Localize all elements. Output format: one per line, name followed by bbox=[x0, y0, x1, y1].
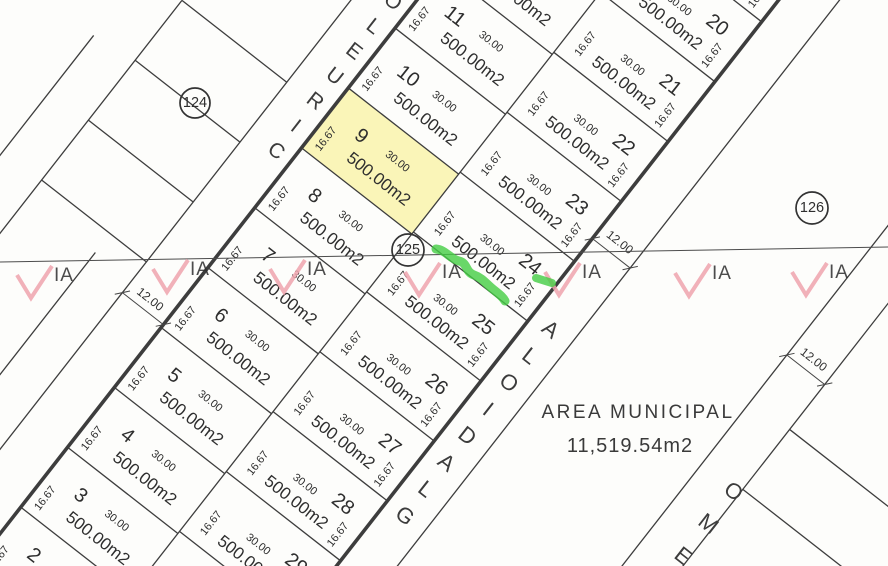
area-municipal-value: 11,519.54m2 bbox=[567, 435, 693, 457]
lot-25-number: 25 bbox=[468, 309, 499, 340]
via-watermark-text: IA bbox=[829, 262, 849, 283]
via-watermark-6: IA bbox=[792, 262, 849, 295]
lot-4-area-label: 500.00m2 bbox=[109, 448, 180, 510]
lot-3-number: 3 bbox=[69, 483, 91, 507]
lot-20-street-frontage-label: 16.67 bbox=[699, 41, 725, 70]
lot-2-frontage-label: 16.67 bbox=[0, 544, 12, 566]
via-watermark-1: IA bbox=[153, 259, 210, 292]
street-ciruelo-letter-I: I bbox=[286, 115, 305, 137]
lot-27-frontage-label: 16.67 bbox=[292, 389, 318, 418]
lot-26-number: 26 bbox=[421, 369, 452, 400]
lot-28-frontage-label: 16.67 bbox=[245, 449, 271, 478]
street-gladiola-letter-L: L bbox=[517, 342, 542, 369]
area-municipal-title: AREA MUNICIPAL bbox=[541, 402, 734, 423]
block124-row-line bbox=[182, 0, 287, 82]
lot-29-number: 29 bbox=[281, 549, 312, 566]
lot-20-number: 20 bbox=[702, 10, 733, 41]
via-watermark-check bbox=[675, 264, 710, 296]
lot-26-frontage-label: 16.67 bbox=[338, 329, 364, 358]
lot-7-number: 7 bbox=[257, 244, 279, 268]
lot-5-area-label: 500.00m2 bbox=[156, 388, 227, 450]
street-ciruelo-letter-C: C bbox=[263, 137, 289, 164]
lot-22-number: 22 bbox=[608, 129, 639, 160]
street-emo-letter-O: O bbox=[719, 476, 748, 506]
via-watermark-check bbox=[153, 260, 188, 292]
street-gladiola-letter-A: A bbox=[433, 448, 460, 477]
block124-west-edge bbox=[0, 0, 182, 246]
street-emo-letter-M: M bbox=[694, 508, 724, 539]
lot-28-number: 28 bbox=[327, 489, 358, 520]
lot-5-number: 5 bbox=[163, 364, 185, 388]
lot-8-depth-label: 30.00 bbox=[336, 208, 365, 234]
street-gladiola-letter-L: L bbox=[413, 475, 438, 502]
block-circle-124-label: 124 bbox=[183, 95, 207, 111]
lot-3-depth-label: 30.00 bbox=[102, 508, 131, 534]
lot-11-area-label: 500.00m2 bbox=[437, 28, 508, 90]
lot-24-frontage-label: 16.67 bbox=[432, 209, 458, 238]
street-ciruelo-letter-R: R bbox=[302, 87, 328, 114]
street-gladiola-letter-A: A bbox=[537, 315, 564, 344]
plat-map-scan: 12.00 12.00 12.00 16.671230.00500.00m216… bbox=[0, 0, 888, 566]
rotated-plat-group: 12.00 12.00 12.00 16.671230.00500.00m216… bbox=[0, 0, 888, 566]
west-street-edge bbox=[0, 35, 94, 185]
gladiola-width-label: 12.00 bbox=[604, 227, 637, 257]
via-watermark-text: IA bbox=[582, 262, 602, 283]
block124-row-line bbox=[42, 180, 147, 262]
lot-11-number: 11 bbox=[440, 1, 470, 31]
lot-24-street-frontage-label: 16.67 bbox=[512, 281, 538, 310]
via-watermark-check bbox=[792, 263, 827, 295]
lot-22-street-frontage-label: 16.67 bbox=[606, 161, 632, 190]
lot-21-street-frontage-label: 16.67 bbox=[652, 101, 678, 130]
lot-4-number: 4 bbox=[116, 424, 138, 448]
via-watermark-check bbox=[17, 266, 52, 298]
east-block-row-line bbox=[790, 429, 888, 541]
lot-22-frontage-label: 16.67 bbox=[526, 89, 552, 118]
street-gladiola-letter-O: O bbox=[495, 367, 524, 397]
street-ciruelo-letter-E: E bbox=[341, 38, 366, 65]
street-gladiola-letter-D: D bbox=[454, 421, 482, 450]
lot-8-number: 8 bbox=[303, 184, 325, 208]
street-ciruelo-letter-O: O bbox=[379, 0, 406, 16]
lot-23-number: 23 bbox=[561, 189, 592, 220]
lot-27-street-frontage-label: 16.67 bbox=[372, 460, 398, 489]
via-watermark-text: IA bbox=[712, 263, 732, 284]
via-watermark-text: IA bbox=[307, 259, 327, 280]
via-watermark-text: IA bbox=[190, 259, 210, 280]
lot-23-street-frontage-label: 16.67 bbox=[559, 221, 585, 250]
lot-3-area-label: 500.00m2 bbox=[62, 508, 133, 566]
green-dash-lot-24 bbox=[536, 278, 552, 283]
lot-4-depth-label: 30.00 bbox=[149, 448, 178, 474]
lot-25-street-frontage-label: 16.67 bbox=[465, 341, 491, 370]
lot-28-street-frontage-label: 16.67 bbox=[325, 520, 351, 549]
lot-6-number: 6 bbox=[210, 304, 232, 328]
block-circle-124: 124 bbox=[180, 88, 210, 118]
block-circle-126-label: 126 bbox=[800, 200, 824, 216]
lot-23-frontage-label: 16.67 bbox=[479, 149, 505, 178]
lot-6-depth-label: 30.00 bbox=[242, 328, 271, 354]
lot-26-street-frontage-label: 16.67 bbox=[418, 400, 444, 429]
lot-10-number: 10 bbox=[393, 61, 424, 92]
street-gladiola-letter-G: G bbox=[391, 500, 420, 530]
street-emo-letter-E: E bbox=[670, 541, 697, 566]
lot-2-number: 2 bbox=[23, 543, 45, 566]
east-block-row-line bbox=[743, 489, 886, 566]
street-ciruelo-letter-L: L bbox=[362, 14, 385, 39]
emo-width-label: 12.00 bbox=[798, 345, 831, 375]
lot-21-frontage-label: 16.67 bbox=[572, 30, 598, 59]
highlight-lot-9 bbox=[302, 88, 459, 234]
lot-6-area-label: 500.00m2 bbox=[203, 328, 274, 390]
lot-11-depth-label: 30.00 bbox=[476, 29, 505, 55]
via-watermark-3: IA bbox=[405, 262, 462, 295]
block-circle-126: 126 bbox=[796, 192, 828, 224]
via-watermark-check bbox=[405, 263, 440, 295]
lot-29-frontage-label: 16.67 bbox=[198, 509, 224, 538]
block-circle-125-label: 125 bbox=[396, 242, 420, 258]
lot-27-number: 27 bbox=[374, 429, 405, 460]
ciruelo-width-label: 12.00 bbox=[134, 284, 167, 314]
lot-12-area-label: 500.00m2 bbox=[483, 0, 554, 30]
street-ciruelo-letter-U: U bbox=[322, 63, 348, 90]
lot-19-street-frontage-label: 16.67 bbox=[746, 0, 772, 10]
via-watermark-5: IA bbox=[675, 263, 732, 296]
plat-svg: 12.00 12.00 12.00 16.671230.00500.00m216… bbox=[0, 0, 888, 566]
lot-labels: 16.671230.00500.00m216.671130.00500.00m2… bbox=[0, 0, 787, 566]
lot-21-number: 21 bbox=[655, 70, 686, 101]
via-watermark-text: IA bbox=[54, 265, 74, 286]
lot-10-depth-label: 30.00 bbox=[430, 89, 459, 115]
street-gladiola-letter-I: I bbox=[478, 397, 498, 420]
lot-5-depth-label: 30.00 bbox=[196, 388, 225, 414]
via-watermark-0: IA bbox=[17, 265, 74, 298]
block124-row-line bbox=[88, 120, 193, 202]
